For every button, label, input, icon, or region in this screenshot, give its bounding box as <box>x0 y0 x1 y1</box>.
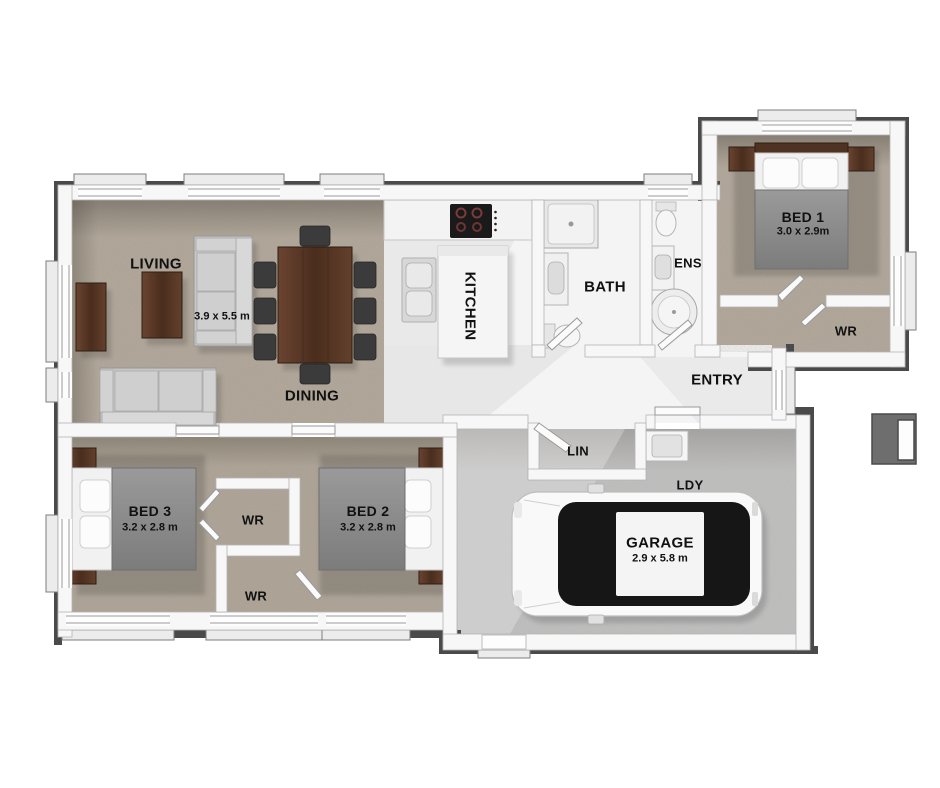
bed2-dims: 3.2 x 2.8 m <box>340 523 396 534</box>
garage-door <box>655 407 700 415</box>
bed2-door <box>292 426 335 434</box>
wall-garage-right <box>796 415 810 650</box>
wall-bath-bottom-2 <box>585 345 655 357</box>
bed3-label: BED 3 <box>129 504 172 518</box>
bath-label: BATH <box>584 280 626 295</box>
laundry-tub <box>646 431 688 461</box>
wall-ens-bottom <box>695 345 720 357</box>
garage-label: GARAGE <box>626 536 694 551</box>
pillow <box>802 158 838 188</box>
sofa <box>194 236 252 346</box>
ens-label: ENS <box>674 257 702 270</box>
sofa-2 <box>100 368 216 426</box>
ens-toilet <box>656 202 676 236</box>
pillow <box>763 158 799 188</box>
wall-bedwing-top-2 <box>219 423 292 437</box>
bed-duvet <box>112 468 196 570</box>
bed3-dims: 3.2 x 2.8 m <box>122 523 178 534</box>
wall-wr-closet-mid <box>216 545 300 556</box>
car-headlight <box>514 590 522 606</box>
wall-kitchen-bath <box>532 200 544 345</box>
wall-bedwing-top-3 <box>335 423 457 437</box>
bed-duvet <box>319 468 405 570</box>
kitchen-label: KITCHEN <box>463 272 478 341</box>
living-label: LIVING <box>130 257 182 272</box>
wr-mid-top-label: WR <box>242 514 264 527</box>
bed1-label: BED 1 <box>782 210 825 224</box>
wall-wing-right <box>890 121 905 367</box>
wr-bed1-label: WR <box>835 325 857 338</box>
wall-bath-bottom-1 <box>532 345 545 357</box>
ens-vanity <box>652 246 674 290</box>
bedside-table <box>729 147 755 171</box>
bed2-label: BED 2 <box>347 504 390 518</box>
car-headlight <box>514 502 522 518</box>
bed-headboard <box>755 143 848 153</box>
car-mirror <box>588 615 604 624</box>
floor-plan: LIVING 3.9 x 5.5 m DINING KITCHEN BATH E… <box>0 0 940 788</box>
coffee-table <box>142 272 182 338</box>
wall-wr-partition-1 <box>720 295 778 307</box>
car-taillight <box>752 502 758 516</box>
bath-vanity <box>544 253 568 305</box>
bed3-door <box>176 426 219 434</box>
pillow <box>405 480 431 512</box>
entry-label: ENTRY <box>691 373 743 388</box>
letterbox <box>872 414 916 464</box>
wall-bath-ens <box>640 200 652 345</box>
wall-wr-closet-top <box>216 478 300 489</box>
bedside-table <box>848 147 874 171</box>
car-taillight <box>752 592 758 606</box>
wall-wr-closet-right <box>289 478 300 556</box>
floor-plan-drawing <box>0 0 940 788</box>
wall-lin-bottom <box>528 469 646 480</box>
island-bench-edge <box>438 246 508 256</box>
tv-unit <box>76 283 106 351</box>
dining-table <box>278 247 352 363</box>
wall-garage-left <box>443 423 457 648</box>
wall-garage-top-3 <box>700 415 803 429</box>
car-mirror <box>588 484 604 493</box>
shower <box>544 200 598 248</box>
dining-label: DINING <box>285 389 339 404</box>
wall-wr-closet-left <box>216 545 227 612</box>
corner-shower <box>651 289 697 335</box>
wall-bedwing-top-1 <box>58 423 176 437</box>
pillow <box>80 516 110 548</box>
wall-wr-partition-2 <box>826 295 890 307</box>
living-dims: 3.9 x 5.5 m <box>194 312 250 323</box>
pillow <box>80 480 110 512</box>
wall-ens-right <box>702 200 717 357</box>
wr-mid-bottom-label: WR <box>245 590 267 603</box>
wall-top <box>58 185 720 200</box>
kitchen-sink <box>402 258 436 322</box>
garage-dims: 2.9 x 5.8 m <box>632 554 688 565</box>
pillow <box>405 516 431 548</box>
ldy-label: LDY <box>677 479 704 492</box>
cooktop <box>450 204 497 238</box>
wall-wing-bottom <box>748 352 905 367</box>
lin-label: LIN <box>567 445 589 458</box>
wall-garage-top-2 <box>646 415 655 429</box>
bed1-dims: 3.0 x 2.9m <box>777 227 830 238</box>
